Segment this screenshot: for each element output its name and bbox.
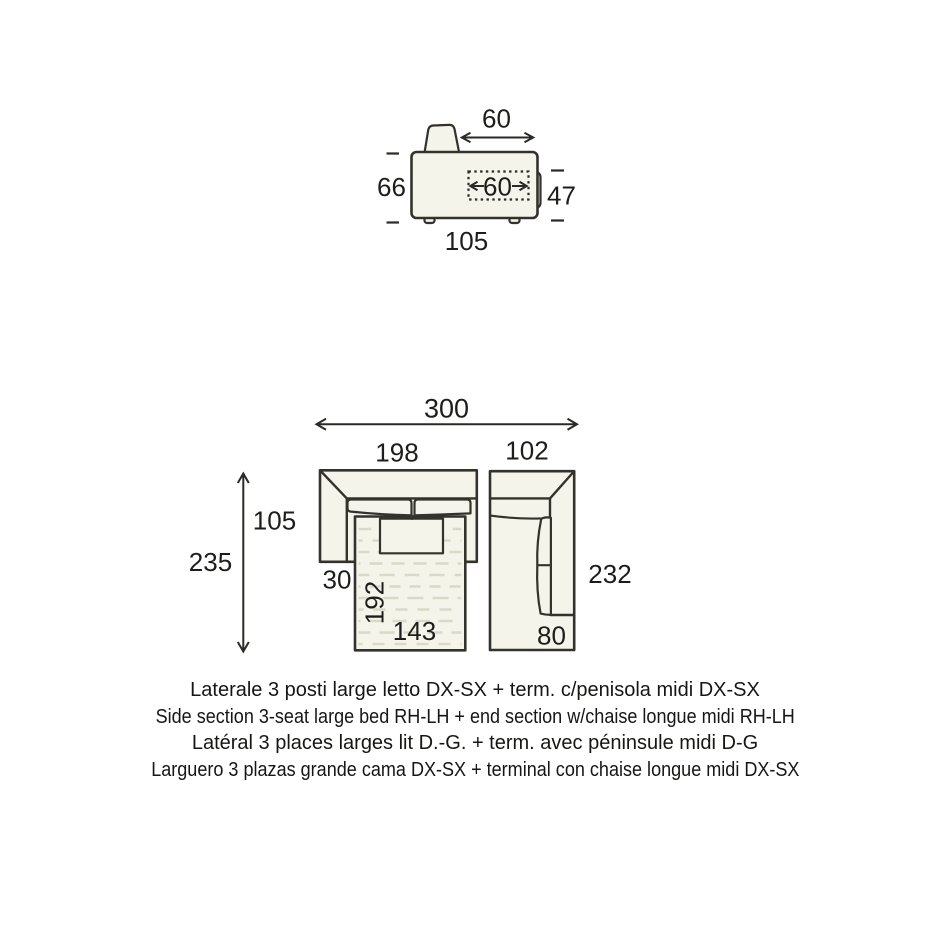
caption-french: Latéral 3 places larges lit D.-G. + term… [0, 730, 950, 757]
dim-armrest-height: 47 [547, 181, 576, 211]
dim-end-section-width: 102 [505, 436, 548, 466]
sofa-dimension-sheet: 60 60 66 47 105 [0, 0, 950, 950]
top-width-arrow [462, 133, 533, 142]
open-depth-arrow [238, 474, 249, 652]
seat-cushion-left [348, 500, 412, 516]
dim-bed-width: 143 [393, 616, 436, 646]
dim-height: 66 [377, 172, 406, 202]
dim-chaise-width: 80 [537, 621, 566, 651]
caption-english: Side section 3-seat large bed RH-LH + en… [0, 704, 950, 731]
dim-side-section-width: 198 [375, 438, 418, 468]
dim-seat-depth: 60 [483, 172, 512, 202]
dim-end-section-depth: 232 [588, 559, 631, 589]
top-view: 300 198 102 235 105 30 192 143 232 80 [189, 394, 632, 652]
caption-italian: Laterale 3 posti large letto DX-SX + ter… [0, 677, 950, 704]
dim-top-width: 60 [482, 104, 511, 134]
dim-arm-width: 30 [323, 565, 352, 595]
dim-open-bed-depth: 235 [189, 547, 232, 577]
dim-total-width: 300 [424, 394, 469, 424]
caption-english-text: Side section 3-seat large bed RH-LH + en… [155, 704, 794, 731]
caption-spanish-text: Larguero 3 plazas grande cama DX-SX + te… [151, 757, 799, 784]
side-view: 60 60 66 47 105 [377, 104, 576, 257]
seat-cushion-right [415, 500, 471, 516]
dim-section-depth: 105 [253, 506, 296, 536]
side-view-backrest [425, 125, 460, 153]
dim-bed-length: 192 [360, 581, 390, 624]
dim-side-total-depth: 105 [445, 226, 488, 256]
bed-head-panel [380, 519, 443, 554]
caption-block: Laterale 3 posti large letto DX-SX + ter… [0, 677, 950, 783]
caption-spanish: Larguero 3 plazas grande cama DX-SX + te… [0, 757, 950, 784]
sofa-dimension-diagram: 60 60 66 47 105 [0, 0, 950, 680]
